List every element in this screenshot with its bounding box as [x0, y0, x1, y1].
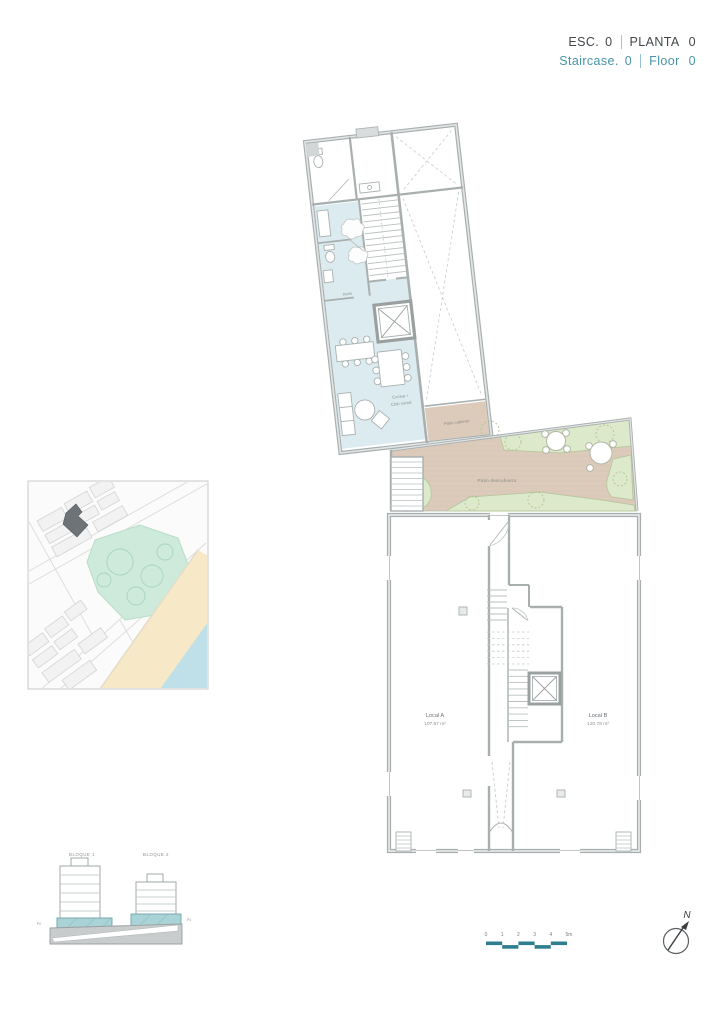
title-divider-es — [621, 35, 622, 49]
scale-label-en: Staircase. — [559, 54, 619, 68]
scale-end-label: 5m — [566, 932, 573, 938]
scale-tick-3: 3 — [533, 932, 536, 938]
section-block-2-label: BLOQUE 2 — [143, 852, 169, 857]
north-label: N — [683, 910, 691, 921]
scale-label-es: ESC. — [568, 35, 599, 49]
svg-text:Local A: Local A — [426, 713, 445, 719]
floor-value-es: 0 — [689, 35, 696, 49]
upper-wing: Aseo Cocin — [304, 118, 491, 453]
floor-label-es: PLANTA — [630, 35, 680, 49]
patio-stairs — [391, 457, 423, 511]
scale-tick-0: 0 — [485, 932, 488, 938]
floor-value-en: 0 — [689, 54, 696, 68]
title-divider-en — [640, 54, 641, 68]
drawing-sheet: ESC. 0 PLANTA 0 Staircase. 0 Floor 0 — [0, 0, 723, 1024]
scale-tick-4: 4 — [549, 932, 552, 938]
elevator-icon-lower — [529, 673, 560, 704]
site-location-map — [21, 468, 212, 697]
lower-building: Local A 107.87 m² Local B 120.78 m² — [386, 512, 643, 854]
section-diagram: BLOQUE 1 BLOQUE 2 — [37, 852, 191, 944]
title-block: ESC. 0 PLANTA 0 Staircase. 0 Floor 0 — [559, 33, 696, 69]
plan-canvas: Aseo Cocin — [0, 0, 723, 1024]
section-ground — [50, 924, 182, 944]
scale-bar: 0 1 2 3 4 5m — [485, 932, 573, 949]
title-row-en: Staircase. 0 Floor 0 — [559, 52, 696, 69]
svg-text:Local B: Local B — [589, 713, 608, 719]
scale-tick-1: 1 — [501, 932, 504, 938]
scale-bar-segments — [486, 942, 567, 949]
open-patio-label: Patio descubierto — [478, 478, 517, 483]
section-level-left: P0 — [37, 922, 41, 926]
scale-value-es: 0 — [605, 35, 612, 49]
section-block-2 — [131, 874, 181, 926]
section-block-1-label: BLOQUE 1 — [69, 852, 95, 857]
north-compass: N — [664, 910, 692, 954]
scale-value-en: 0 — [625, 54, 632, 68]
duct-shaft — [306, 143, 319, 157]
balcony-notch — [356, 127, 379, 138]
section-block-1 — [57, 858, 112, 930]
svg-text:107.87 m²: 107.87 m² — [424, 721, 446, 727]
elevator-icon-upper — [374, 301, 415, 342]
title-row-es: ESC. 0 PLANTA 0 — [559, 33, 696, 50]
scale-tick-2: 2 — [517, 932, 520, 938]
section-level-right: P0 — [187, 918, 191, 922]
svg-text:120.78 m²: 120.78 m² — [587, 721, 609, 727]
compass-circle — [664, 929, 689, 954]
floor-label-en: Floor — [649, 54, 679, 68]
